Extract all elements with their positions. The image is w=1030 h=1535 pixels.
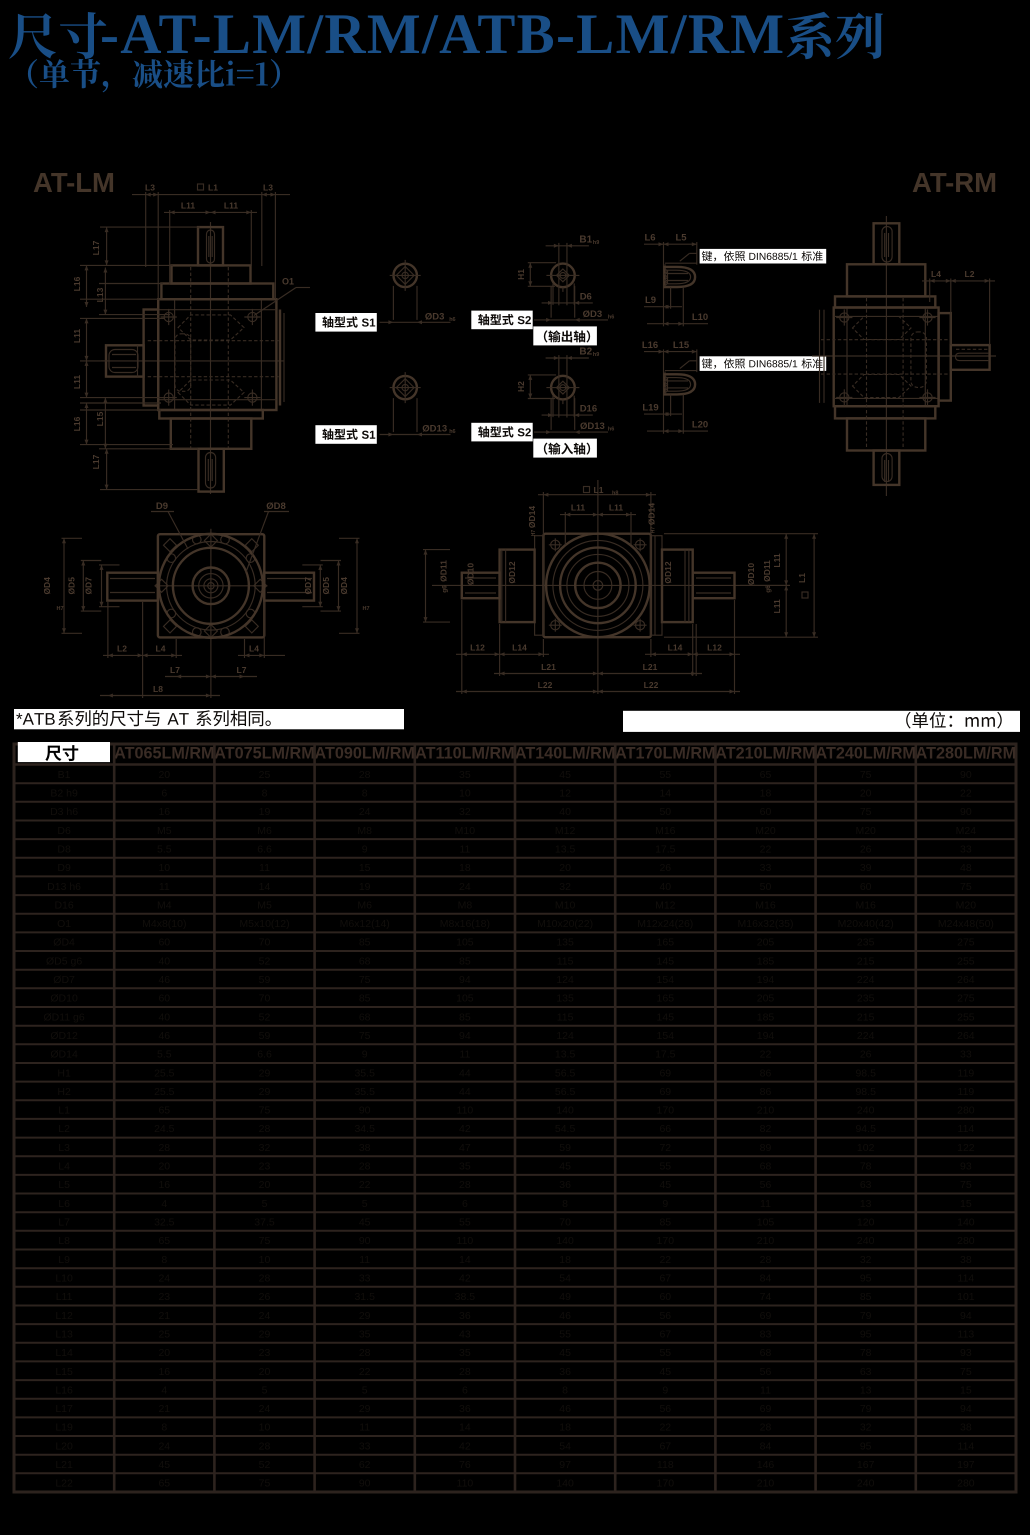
svg-text:165: 165 xyxy=(657,993,675,1005)
svg-text:13.5: 13.5 xyxy=(555,843,576,855)
svg-text:M20x40(42): M20x40(42) xyxy=(838,918,894,930)
svg-text:D9: D9 xyxy=(57,862,71,874)
svg-text:AT280LM/RM: AT280LM/RM xyxy=(916,745,1016,763)
svg-text:D16: D16 xyxy=(54,899,73,911)
svg-text:23: 23 xyxy=(158,1291,170,1303)
svg-text:68: 68 xyxy=(359,955,371,967)
svg-text:52: 52 xyxy=(259,955,271,967)
svg-text:45: 45 xyxy=(559,769,571,781)
svg-text:90: 90 xyxy=(960,769,972,781)
svg-text:L2: L2 xyxy=(58,1123,70,1135)
svg-text:8: 8 xyxy=(262,788,268,800)
svg-text:B2: B2 xyxy=(579,347,592,358)
svg-text:255: 255 xyxy=(957,955,975,967)
svg-text:84: 84 xyxy=(760,1273,772,1285)
svg-text:38.5: 38.5 xyxy=(455,1291,476,1303)
svg-text:114: 114 xyxy=(958,1440,975,1452)
svg-text:55: 55 xyxy=(559,1328,571,1340)
svg-text:75: 75 xyxy=(860,806,872,818)
svg-text:170: 170 xyxy=(657,1105,675,1117)
svg-text:42: 42 xyxy=(459,1273,471,1285)
svg-text:L5: L5 xyxy=(58,1179,70,1191)
svg-text:H7: H7 xyxy=(362,606,369,612)
svg-text:L1: L1 xyxy=(594,485,604,495)
svg-text:L20: L20 xyxy=(55,1440,73,1452)
svg-text:122: 122 xyxy=(957,1142,975,1154)
svg-text:54.5: 54.5 xyxy=(555,1123,576,1135)
svg-text:67: 67 xyxy=(659,1328,671,1340)
svg-text:36: 36 xyxy=(459,1310,471,1322)
svg-text:B1: B1 xyxy=(58,769,71,781)
svg-text:ØD10: ØD10 xyxy=(50,993,78,1005)
svg-text:185: 185 xyxy=(757,1011,775,1023)
svg-text:L12: L12 xyxy=(470,643,485,653)
svg-text:H7: H7 xyxy=(650,527,656,534)
svg-text:42: 42 xyxy=(459,1123,471,1135)
svg-text:24: 24 xyxy=(359,806,371,818)
svg-text:15: 15 xyxy=(359,862,371,874)
svg-text:47: 47 xyxy=(459,1142,471,1154)
svg-text:94.5: 94.5 xyxy=(855,1123,876,1135)
svg-text:5.5: 5.5 xyxy=(157,843,172,855)
svg-text:98.5: 98.5 xyxy=(855,1067,876,1079)
svg-text:h9: h9 xyxy=(593,352,599,358)
svg-text:ØD14: ØD14 xyxy=(527,506,537,528)
svg-text:240: 240 xyxy=(857,1105,875,1117)
svg-text:L3: L3 xyxy=(145,183,155,193)
svg-text:H1: H1 xyxy=(516,269,526,280)
svg-text:19: 19 xyxy=(359,881,371,893)
svg-text:135: 135 xyxy=(556,937,574,949)
svg-text:ØD10: ØD10 xyxy=(746,563,756,585)
svg-text:13.5: 13.5 xyxy=(555,1049,576,1061)
svg-text:60: 60 xyxy=(760,806,772,818)
svg-text:170: 170 xyxy=(657,1235,675,1247)
svg-text:40: 40 xyxy=(158,1011,170,1023)
svg-text:M16: M16 xyxy=(855,899,876,911)
svg-text:45: 45 xyxy=(359,1217,371,1229)
svg-text:9: 9 xyxy=(662,1384,668,1396)
svg-text:35: 35 xyxy=(359,1328,371,1340)
svg-text:5: 5 xyxy=(262,1198,268,1210)
svg-text:44: 44 xyxy=(459,1067,471,1079)
svg-text:L8: L8 xyxy=(58,1235,70,1247)
svg-text:L22: L22 xyxy=(538,680,553,690)
svg-text:L21: L21 xyxy=(541,662,556,672)
svg-text:54: 54 xyxy=(559,1273,571,1285)
svg-text:85: 85 xyxy=(860,1291,872,1303)
svg-text:22: 22 xyxy=(659,1254,671,1266)
svg-text:114: 114 xyxy=(958,1273,975,1285)
svg-text:L5: L5 xyxy=(675,233,687,244)
svg-text:8: 8 xyxy=(562,1198,568,1210)
svg-text:56: 56 xyxy=(760,1179,772,1191)
svg-text:15: 15 xyxy=(960,1384,972,1396)
svg-text:5: 5 xyxy=(262,1384,268,1396)
svg-text:23: 23 xyxy=(259,1161,271,1173)
svg-text:124: 124 xyxy=(556,974,574,986)
svg-text:95: 95 xyxy=(860,1328,872,1340)
svg-text:75: 75 xyxy=(960,881,972,893)
svg-text:194: 194 xyxy=(757,974,775,986)
svg-text:20: 20 xyxy=(860,788,872,800)
svg-text:35.5: 35.5 xyxy=(354,1086,375,1098)
svg-text:26: 26 xyxy=(860,1049,872,1061)
svg-text:235: 235 xyxy=(857,993,875,1005)
svg-text:135: 135 xyxy=(556,993,574,1005)
svg-text:L11: L11 xyxy=(224,200,238,210)
svg-text:90: 90 xyxy=(359,1478,371,1490)
svg-text:L12: L12 xyxy=(55,1310,73,1322)
svg-text:94: 94 xyxy=(960,1403,972,1415)
svg-text:118: 118 xyxy=(657,1459,674,1471)
svg-text:46: 46 xyxy=(559,1310,571,1322)
svg-text:75: 75 xyxy=(259,1235,271,1247)
svg-text:L3: L3 xyxy=(263,183,273,193)
svg-text:D13 h6: D13 h6 xyxy=(47,881,81,893)
svg-text:280: 280 xyxy=(957,1105,975,1117)
svg-text:75: 75 xyxy=(960,1179,972,1191)
svg-text:28: 28 xyxy=(359,1347,371,1359)
svg-text:69: 69 xyxy=(760,1310,772,1322)
svg-text:6.6: 6.6 xyxy=(257,1049,272,1061)
svg-text:28: 28 xyxy=(259,1273,271,1285)
svg-text:67: 67 xyxy=(659,1273,671,1285)
svg-text:62: 62 xyxy=(359,1459,371,1471)
svg-text:86: 86 xyxy=(760,1067,772,1079)
svg-text:38: 38 xyxy=(359,1142,371,1154)
svg-text:32: 32 xyxy=(860,1254,872,1266)
svg-text:255: 255 xyxy=(957,1011,975,1023)
svg-text:L3: L3 xyxy=(58,1142,70,1154)
svg-text:AT065LM/RM: AT065LM/RM xyxy=(114,745,214,763)
svg-text:L13: L13 xyxy=(55,1328,73,1340)
svg-text:66: 66 xyxy=(659,1123,671,1135)
svg-text:L4: L4 xyxy=(249,644,259,654)
svg-text:8: 8 xyxy=(161,1254,167,1266)
svg-text:h8: h8 xyxy=(612,491,618,497)
svg-text:45: 45 xyxy=(659,1179,671,1191)
svg-text:82: 82 xyxy=(760,1123,772,1135)
svg-text:L20: L20 xyxy=(692,420,708,431)
svg-text:L10: L10 xyxy=(55,1273,73,1285)
svg-text:20: 20 xyxy=(158,1161,170,1173)
svg-text:60: 60 xyxy=(860,881,872,893)
svg-text:L7: L7 xyxy=(170,665,180,675)
svg-text:L19: L19 xyxy=(642,403,658,414)
svg-text:AT090LM/RM: AT090LM/RM xyxy=(314,745,414,763)
svg-text:36: 36 xyxy=(459,1403,471,1415)
svg-text:35: 35 xyxy=(459,1161,471,1173)
svg-text:140: 140 xyxy=(556,1235,574,1247)
svg-text:40: 40 xyxy=(659,881,671,893)
svg-text:110: 110 xyxy=(457,1478,474,1490)
svg-text:264: 264 xyxy=(957,1030,975,1042)
svg-text:17.5: 17.5 xyxy=(655,1049,676,1061)
svg-text:205: 205 xyxy=(757,937,775,949)
svg-text:56.5: 56.5 xyxy=(555,1067,576,1079)
svg-text:L11: L11 xyxy=(56,1291,73,1303)
svg-text:28: 28 xyxy=(459,1179,471,1191)
svg-text:16: 16 xyxy=(158,1179,170,1191)
svg-text:89: 89 xyxy=(760,1142,772,1154)
svg-text:M10: M10 xyxy=(455,825,476,837)
svg-text:16: 16 xyxy=(158,806,170,818)
svg-text:ØD7: ØD7 xyxy=(84,577,94,595)
svg-text:85: 85 xyxy=(659,1217,671,1229)
svg-text:ØD3: ØD3 xyxy=(583,309,603,320)
svg-text:M20: M20 xyxy=(956,899,977,911)
svg-text:L13: L13 xyxy=(95,287,105,302)
svg-text:110: 110 xyxy=(457,1105,474,1117)
svg-text:17.5: 17.5 xyxy=(655,843,676,855)
svg-text:94: 94 xyxy=(459,1030,471,1042)
svg-text:29: 29 xyxy=(259,1067,271,1079)
svg-text:AT075LM/RM: AT075LM/RM xyxy=(214,745,314,763)
svg-text:25: 25 xyxy=(158,1328,170,1340)
svg-text:22: 22 xyxy=(960,788,972,800)
svg-text:ØD5: ØD5 xyxy=(321,577,331,595)
svg-text:M12: M12 xyxy=(655,899,676,911)
svg-text:170: 170 xyxy=(657,1478,675,1490)
svg-text:46: 46 xyxy=(158,974,170,986)
svg-text:14: 14 xyxy=(659,788,671,800)
svg-text:23: 23 xyxy=(259,1347,271,1359)
svg-text:56: 56 xyxy=(760,1366,772,1378)
svg-text:78: 78 xyxy=(860,1161,872,1173)
svg-text:L11: L11 xyxy=(72,375,82,389)
svg-text:D6: D6 xyxy=(57,825,71,837)
svg-text:11: 11 xyxy=(259,862,270,874)
svg-text:-AT-LM/RM/ATB-LM/RM: -AT-LM/RM/ATB-LM/RM xyxy=(100,3,785,66)
svg-text:59: 59 xyxy=(559,1142,571,1154)
svg-text:14: 14 xyxy=(459,1422,471,1434)
svg-text:14: 14 xyxy=(259,881,271,893)
svg-text:ØD11: ØD11 xyxy=(439,560,449,582)
svg-text:D9: D9 xyxy=(156,501,168,512)
svg-text:224: 224 xyxy=(857,1030,875,1042)
svg-text:8: 8 xyxy=(562,1384,568,1396)
svg-text:6.6: 6.6 xyxy=(257,843,272,855)
svg-text:105: 105 xyxy=(456,993,474,1005)
svg-text:ØD7: ØD7 xyxy=(303,577,313,595)
svg-text:28: 28 xyxy=(359,769,371,781)
svg-text:36: 36 xyxy=(559,1366,571,1378)
svg-text:L15: L15 xyxy=(673,340,690,351)
svg-text:24: 24 xyxy=(259,1310,271,1322)
svg-text:28: 28 xyxy=(158,1142,170,1154)
svg-text:50: 50 xyxy=(760,881,772,893)
svg-text:14: 14 xyxy=(459,1254,471,1266)
svg-text:ØD14: ØD14 xyxy=(50,1049,78,1061)
svg-text:L11: L11 xyxy=(72,329,82,343)
svg-text:35: 35 xyxy=(459,1347,471,1359)
svg-text:6: 6 xyxy=(161,788,167,800)
svg-text:75: 75 xyxy=(359,974,371,986)
svg-text:M5: M5 xyxy=(157,825,172,837)
svg-text:75: 75 xyxy=(860,769,872,781)
svg-text:B1: B1 xyxy=(579,234,592,245)
svg-text:H1: H1 xyxy=(57,1067,71,1079)
svg-text:9: 9 xyxy=(662,1198,668,1210)
svg-text:42: 42 xyxy=(459,1440,471,1452)
svg-text:h6: h6 xyxy=(449,317,455,323)
svg-text:11: 11 xyxy=(459,1049,470,1061)
svg-text:114: 114 xyxy=(958,1123,975,1135)
svg-text:25.5: 25.5 xyxy=(154,1067,175,1079)
svg-text:L9: L9 xyxy=(58,1254,70,1266)
svg-text:67: 67 xyxy=(659,1440,671,1452)
svg-text:L11: L11 xyxy=(772,553,782,567)
svg-text:49: 49 xyxy=(559,1291,571,1303)
svg-text:M5: M5 xyxy=(257,899,272,911)
svg-text:M10: M10 xyxy=(555,899,576,911)
svg-text:L11: L11 xyxy=(571,503,585,513)
svg-text:105: 105 xyxy=(456,937,474,949)
svg-text:H2: H2 xyxy=(516,381,526,392)
svg-text:L17: L17 xyxy=(91,240,101,255)
svg-text:119: 119 xyxy=(958,1086,975,1098)
svg-text:g6: g6 xyxy=(442,585,449,593)
svg-text:10: 10 xyxy=(259,1254,271,1266)
svg-text:5: 5 xyxy=(362,1384,368,1396)
svg-text:O1: O1 xyxy=(282,277,294,287)
svg-text:H7: H7 xyxy=(531,530,537,537)
svg-text:70: 70 xyxy=(259,993,271,1005)
svg-text:75: 75 xyxy=(259,1478,271,1490)
svg-text:90: 90 xyxy=(960,806,972,818)
svg-text:11: 11 xyxy=(760,1384,771,1396)
svg-text:5.5: 5.5 xyxy=(157,1049,172,1061)
svg-text:210: 210 xyxy=(757,1235,775,1247)
svg-text:L7: L7 xyxy=(237,665,247,675)
svg-text:65: 65 xyxy=(158,1235,170,1247)
svg-text:ØD3: ØD3 xyxy=(425,311,445,322)
svg-text:240: 240 xyxy=(857,1235,875,1247)
svg-text:83: 83 xyxy=(760,1328,772,1340)
svg-text:M24: M24 xyxy=(956,825,977,837)
svg-text:22: 22 xyxy=(659,1422,671,1434)
svg-text:240: 240 xyxy=(857,1478,875,1490)
svg-text:215: 215 xyxy=(857,955,875,967)
svg-text:63: 63 xyxy=(860,1366,872,1378)
svg-text:B2 h9: B2 h9 xyxy=(50,788,78,800)
svg-text:ØD12: ØD12 xyxy=(663,561,673,583)
svg-text:25: 25 xyxy=(259,769,271,781)
svg-text:11: 11 xyxy=(459,843,470,855)
svg-text:AT210LM/RM: AT210LM/RM xyxy=(715,745,815,763)
svg-text:11: 11 xyxy=(359,1254,370,1266)
svg-text:275: 275 xyxy=(957,993,975,1005)
svg-text:102: 102 xyxy=(857,1142,875,1154)
svg-text:18: 18 xyxy=(559,1254,571,1266)
svg-text:4: 4 xyxy=(161,1384,167,1396)
svg-text:20: 20 xyxy=(158,769,170,781)
svg-text:33: 33 xyxy=(960,843,972,855)
svg-text:4: 4 xyxy=(161,1198,167,1210)
svg-text:18: 18 xyxy=(459,862,471,874)
svg-text:M8x16(18): M8x16(18) xyxy=(440,918,490,930)
svg-text:76: 76 xyxy=(459,1459,471,1471)
svg-text:ØD12: ØD12 xyxy=(50,1030,78,1042)
svg-text:65: 65 xyxy=(158,1105,170,1117)
svg-text:28: 28 xyxy=(760,1254,772,1266)
svg-text:10: 10 xyxy=(259,1422,271,1434)
svg-text:ØD8: ØD8 xyxy=(266,501,286,512)
svg-text:11: 11 xyxy=(760,1198,771,1210)
svg-text:L12: L12 xyxy=(707,643,722,653)
svg-text:40: 40 xyxy=(559,806,571,818)
svg-text:12: 12 xyxy=(559,788,571,800)
svg-text:85: 85 xyxy=(359,937,371,949)
svg-text:AT140LM/RM: AT140LM/RM xyxy=(515,745,615,763)
svg-text:85: 85 xyxy=(459,1011,471,1023)
svg-text:56: 56 xyxy=(659,1403,671,1415)
svg-text:9: 9 xyxy=(362,843,368,855)
svg-text:ØD13: ØD13 xyxy=(580,421,605,432)
svg-text:55: 55 xyxy=(459,1217,471,1229)
svg-text:72: 72 xyxy=(659,1142,671,1154)
svg-text:78: 78 xyxy=(860,1347,872,1359)
svg-text:32: 32 xyxy=(860,1422,872,1434)
svg-text:6: 6 xyxy=(462,1198,468,1210)
svg-text:ØD4: ØD4 xyxy=(53,937,75,949)
svg-text:98.5: 98.5 xyxy=(855,1086,876,1098)
svg-text:24.5: 24.5 xyxy=(154,1123,175,1135)
svg-text:L1: L1 xyxy=(58,1105,70,1117)
svg-text:59: 59 xyxy=(259,1030,271,1042)
svg-text:D6: D6 xyxy=(580,291,592,302)
svg-text:20: 20 xyxy=(158,1347,170,1359)
svg-text:L4: L4 xyxy=(931,269,941,279)
svg-text:M6: M6 xyxy=(357,899,372,911)
svg-text:74: 74 xyxy=(760,1291,772,1303)
svg-text:140: 140 xyxy=(556,1478,574,1490)
svg-text:ØD4: ØD4 xyxy=(42,577,52,595)
svg-text:68: 68 xyxy=(359,1011,371,1023)
svg-text:22: 22 xyxy=(760,843,772,855)
svg-text:95: 95 xyxy=(860,1440,872,1452)
svg-text:31.5: 31.5 xyxy=(354,1291,375,1303)
svg-text:L16: L16 xyxy=(72,416,82,431)
svg-text:28: 28 xyxy=(259,1123,271,1135)
svg-text:L4: L4 xyxy=(156,644,166,654)
svg-text:L16: L16 xyxy=(55,1384,73,1396)
svg-text:M24x48(50): M24x48(50) xyxy=(938,918,994,930)
svg-text:85: 85 xyxy=(459,955,471,967)
svg-text:33: 33 xyxy=(760,862,772,874)
svg-text:69: 69 xyxy=(760,1403,772,1415)
svg-text:21: 21 xyxy=(158,1310,170,1322)
svg-text:AT240LM/RM: AT240LM/RM xyxy=(815,745,915,763)
svg-text:264: 264 xyxy=(957,974,975,986)
svg-text:ØD13: ØD13 xyxy=(422,424,447,435)
svg-text:90: 90 xyxy=(359,1235,371,1247)
svg-text:55: 55 xyxy=(659,1161,671,1173)
svg-text:115: 115 xyxy=(557,955,574,967)
svg-text:L21: L21 xyxy=(55,1459,73,1471)
svg-text:110: 110 xyxy=(457,1235,474,1247)
svg-text:215: 215 xyxy=(857,1011,875,1023)
svg-text:AT170LM/RM: AT170LM/RM xyxy=(615,745,715,763)
svg-text:L2: L2 xyxy=(965,269,975,279)
svg-text:33: 33 xyxy=(359,1440,371,1452)
svg-text:M4: M4 xyxy=(157,899,172,911)
svg-text:AT-RM: AT-RM xyxy=(912,167,997,198)
svg-text:280: 280 xyxy=(957,1235,975,1247)
svg-text:22: 22 xyxy=(760,1049,772,1061)
svg-text:M8: M8 xyxy=(357,825,372,837)
